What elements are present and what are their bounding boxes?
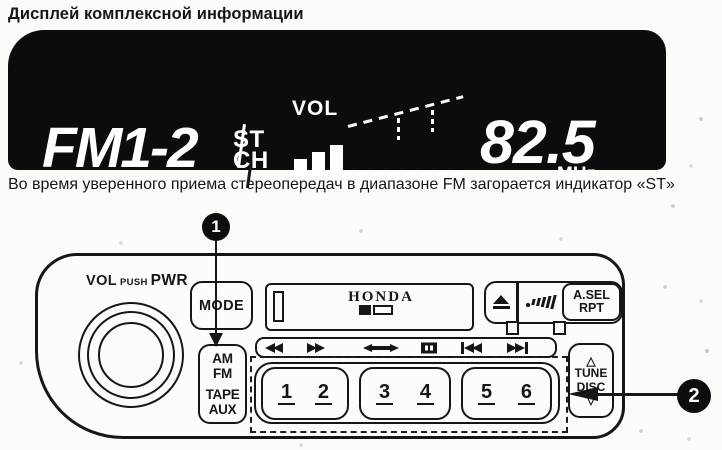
- callout-1-number: 1: [211, 217, 220, 237]
- skip-back-icon: [461, 342, 482, 354]
- preset-3: 3: [376, 382, 393, 405]
- preset-1: 1: [278, 382, 295, 405]
- pwr-label: PWR: [151, 272, 188, 290]
- preset-button-3-4: 3 4: [359, 367, 451, 420]
- page-title: Дисплей комплексной информации: [8, 5, 304, 24]
- auto-reverse-arrow-icon: [363, 344, 399, 352]
- preset-button-1-2: 1 2: [261, 367, 349, 420]
- cassette-door-indicator: [273, 291, 284, 322]
- tune-label: TUNE: [575, 367, 608, 380]
- preset-4: 4: [417, 382, 434, 405]
- asel-rpt-button: A.SEL RPT: [562, 283, 621, 321]
- signal-strength-icon: [526, 303, 530, 307]
- aux-label: AUX: [209, 402, 237, 417]
- brand-logo: HONDA: [305, 289, 457, 306]
- eject-icon: [493, 295, 509, 304]
- tape-label: TAPE: [206, 387, 240, 402]
- skip-forward-icon: [507, 342, 528, 354]
- dolby-icon: [359, 305, 371, 315]
- rewind-icon: [265, 343, 283, 353]
- scan-button: [519, 283, 562, 321]
- push-label: PUSH: [120, 277, 148, 288]
- lcd-display: FM1-2 ST CH VOL 82.5 MHz: [8, 30, 666, 170]
- dolby-nr-icon: [421, 342, 437, 353]
- preset-button-5-6: 5 6: [461, 367, 552, 420]
- callout-1-arrowhead-icon: [209, 333, 223, 347]
- callout-2-arrowhead-icon: [568, 387, 598, 401]
- button-stem-right: [553, 321, 566, 335]
- scan-noise: [0, 0, 2, 2]
- volume-knob-center: [98, 322, 164, 388]
- caption-text: Во время уверенного приема стереопередач…: [8, 176, 675, 194]
- callout-2-number: 2: [688, 385, 699, 408]
- fast-forward-icon: [307, 343, 325, 353]
- transport-symbol-strip: [255, 337, 557, 358]
- volume-bars-icon: [286, 100, 466, 175]
- rpt-label: RPT: [579, 302, 604, 316]
- callout-1-line: [215, 239, 218, 335]
- vol-label: VOL: [86, 273, 117, 289]
- am-label: AM: [212, 351, 232, 366]
- band-source-button: AM FM TAPE AUX: [198, 344, 247, 424]
- eject-button: [486, 283, 516, 321]
- preset-2: 2: [315, 382, 332, 405]
- callout-2-badge: 2: [677, 379, 711, 413]
- fm-label: FM: [213, 366, 232, 381]
- asel-label: A.SEL: [573, 289, 610, 303]
- mode-button: MODE: [190, 281, 253, 330]
- callout-1-badge: 1: [202, 213, 230, 241]
- knob-labels: VOL PUSH PWR: [86, 272, 188, 290]
- tune-disc-button: △ TUNE DISC ▽: [568, 343, 614, 418]
- callout-2-line: [597, 393, 678, 396]
- button-stem-left: [506, 321, 519, 335]
- preset-5: 5: [478, 382, 495, 405]
- cassette-slot: [373, 305, 393, 315]
- band-indicator: FM1-2: [42, 120, 197, 177]
- preset-6: 6: [518, 382, 535, 405]
